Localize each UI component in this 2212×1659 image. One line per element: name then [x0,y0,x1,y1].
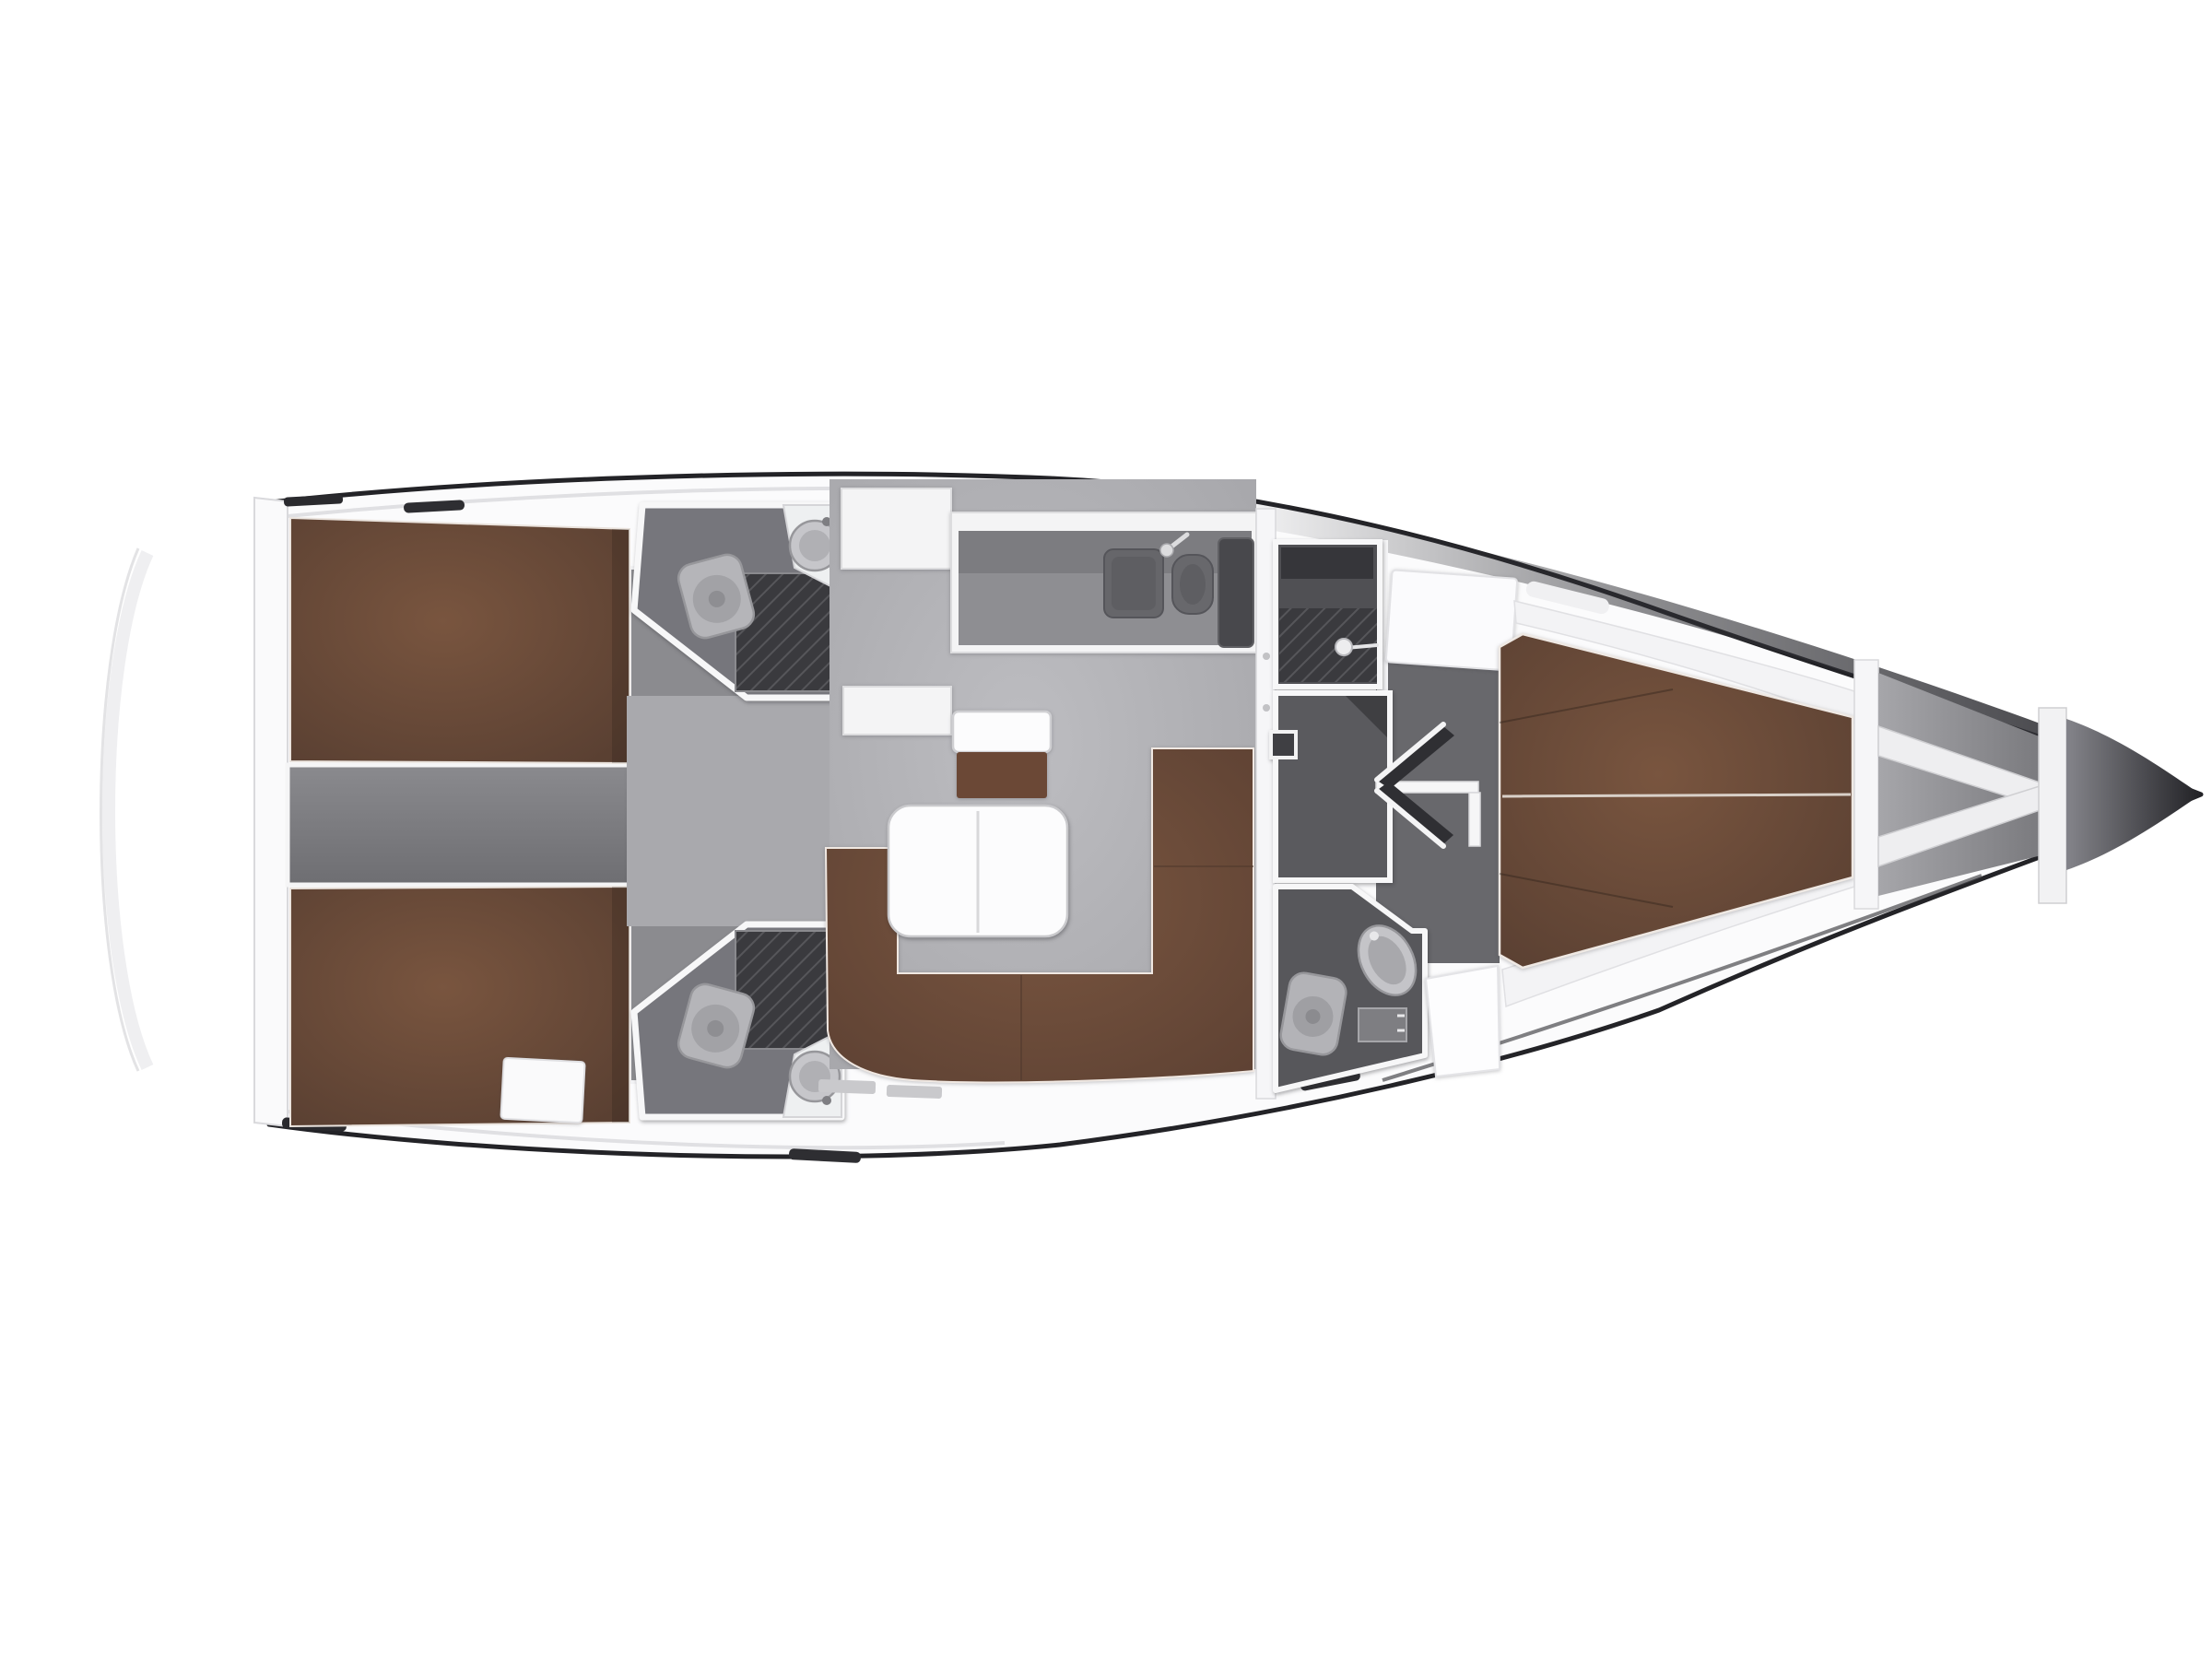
yacht-floor-plan [0,0,2212,1659]
entry-wall-vertical [1469,793,1480,846]
forepeak-bulkhead [1854,660,1878,909]
shower-head-icon [1335,639,1352,655]
anchor-locker-end-beam [2039,708,2066,903]
galley-peninsula [843,687,951,735]
forward-cabinet [1386,570,1518,670]
main-bulkhead [1256,509,1276,1099]
floor-plan-canvas [0,0,2212,1659]
bow-tip [2066,719,2201,870]
faucet-icon [822,1096,831,1105]
aft-head-port-shower [735,573,835,691]
toilet-icon [1278,971,1348,1056]
faucet-base [1160,544,1173,557]
bulkhead-knob-2 [1263,704,1270,712]
aft-cabinet-starboard [500,1058,584,1124]
sofa-base-vent-2 [887,1085,942,1099]
galley-stove [1218,538,1253,647]
aft-head-starboard-shower [735,931,835,1049]
aft-section [288,505,860,1126]
bow-section [1854,660,2201,909]
sink-basin [799,530,830,561]
shower-room [1276,542,1380,687]
galley-sink-small-basin [1180,564,1206,605]
companionway-walkway [627,696,843,926]
transom [254,498,288,1126]
salon-table [888,806,1067,936]
floor-hatch [1271,732,1296,758]
galley-cabinet-left [841,488,951,569]
shower-bench [1281,547,1373,579]
vanity-drawers [1359,1008,1406,1041]
chart-seat-top [953,712,1051,752]
salon [818,479,1256,1099]
chart-seat [953,712,1051,798]
chart-seat-cushion [957,752,1047,798]
aft-berth-port [290,518,629,763]
sofa-base-vent-1 [818,1079,876,1094]
galley-sink-large-basin [1112,557,1156,610]
berth-foot-locker [1426,966,1500,1077]
dressing-area [1271,693,1390,880]
berth-split-line [1502,794,1851,796]
engine-compartment [288,765,636,885]
bulkhead-knob-1 [1263,653,1270,660]
